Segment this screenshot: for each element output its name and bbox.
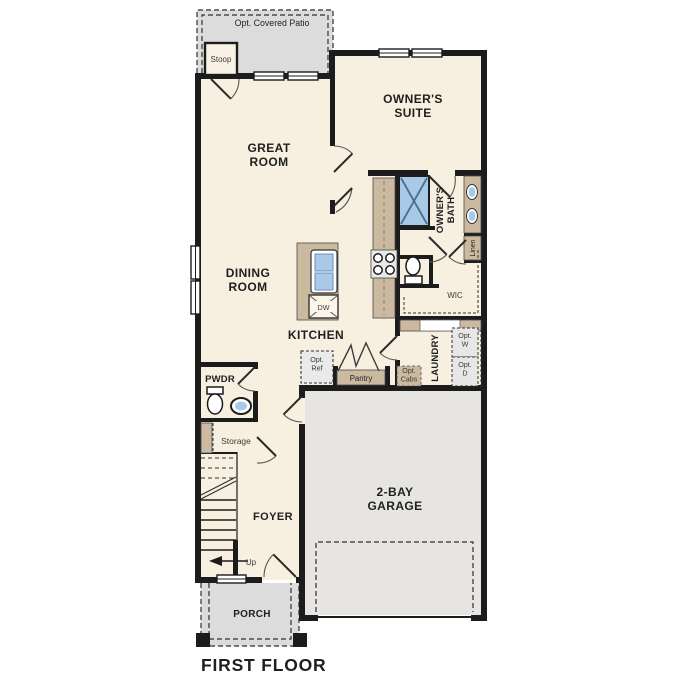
floor-plan-page: DW	[0, 0, 687, 687]
wall-pwdr-right	[253, 391, 258, 422]
bath-toilet-tank	[405, 276, 422, 284]
kitchen-label: KITCHEN	[288, 328, 344, 342]
wall-garage-bottom-right	[471, 615, 487, 621]
wall-linen-bottom	[464, 260, 487, 263]
pantry-label: Pantry	[350, 374, 373, 383]
wall-garage-left-b	[299, 424, 305, 621]
garage-door-threshold	[316, 616, 473, 618]
wic-label: WIC	[447, 291, 463, 300]
wall-exterior-left	[195, 73, 201, 583]
great-room-label: GREATROOM	[247, 141, 290, 169]
wall-linen-top	[464, 233, 487, 236]
burner-icon	[386, 254, 394, 262]
wall-pwdr-bottom	[198, 418, 256, 422]
sink-basin-icon	[315, 254, 333, 271]
wall-toilet-compartment-right	[429, 255, 433, 288]
stoop-label: Stoop	[211, 55, 232, 64]
porch-post-left	[196, 633, 210, 647]
burner-icon	[374, 254, 382, 262]
opt-cabs-label: Opt.Cabs	[401, 366, 418, 383]
wall-stair-newel	[233, 540, 238, 578]
burner-icon	[374, 266, 382, 274]
pwdr-toilet-tank	[207, 387, 223, 394]
laundry-label: LAUNDRY	[430, 334, 441, 382]
dining-room-label: DININGROOM	[226, 266, 270, 294]
wall-laundry-left-a	[395, 320, 400, 336]
wall-bath-top-b	[455, 170, 481, 176]
wall-hall-stub	[330, 200, 335, 214]
dishwasher-label: DW	[318, 303, 330, 312]
linen-label: Linen	[470, 239, 477, 256]
linen-label-group: Linen	[470, 239, 477, 256]
pwdr-label: PWDR	[205, 374, 235, 385]
vanity-sink-basin	[469, 187, 476, 197]
storage-shelf-strip	[201, 423, 212, 453]
wall-wic-laundry	[395, 316, 487, 320]
wall-exterior-right	[481, 50, 487, 621]
pwdr-toilet-bowl	[208, 394, 223, 414]
wall-foyer-bottom-a	[195, 577, 218, 583]
up-label: Up	[246, 558, 257, 567]
floor-caption: FIRST FLOOR	[201, 655, 326, 675]
floor-plan-drawing: DW	[0, 0, 687, 687]
wall-suite-left-interior	[330, 76, 335, 146]
sink-basin-icon	[315, 273, 333, 290]
opt-ref-label: Opt.Ref	[310, 355, 324, 372]
vanity-sink-basin	[469, 211, 476, 221]
bath-toilet-bowl	[406, 257, 420, 275]
porch-label: PORCH	[233, 609, 271, 620]
patio-label: Opt. Covered Patio	[235, 18, 310, 28]
burner-icon	[386, 266, 394, 274]
porch-post-right	[293, 633, 307, 647]
wall-pantry-right	[385, 366, 390, 386]
wall-foyer-bottom-b	[246, 577, 262, 583]
foyer-label: FOYER	[253, 511, 293, 523]
wall-pwdr-top	[198, 362, 258, 367]
pwdr-sink-basin	[235, 402, 247, 411]
laundry-label-group: LAUNDRY	[430, 334, 441, 382]
storage-label: Storage	[221, 436, 251, 446]
